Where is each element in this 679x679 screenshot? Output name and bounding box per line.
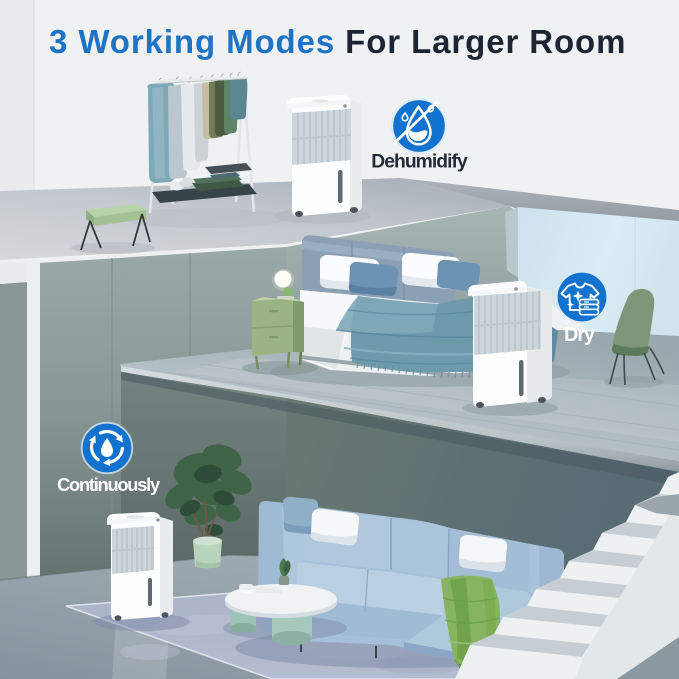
svg-text:Continuously: Continuously [57,474,161,495]
svg-text:3 Working Modes For Larger Roo: 3 Working Modes For Larger Room [49,23,626,60]
svg-text:Dehumidify: Dehumidify [371,152,468,173]
svg-text:Dry: Dry [564,324,596,346]
